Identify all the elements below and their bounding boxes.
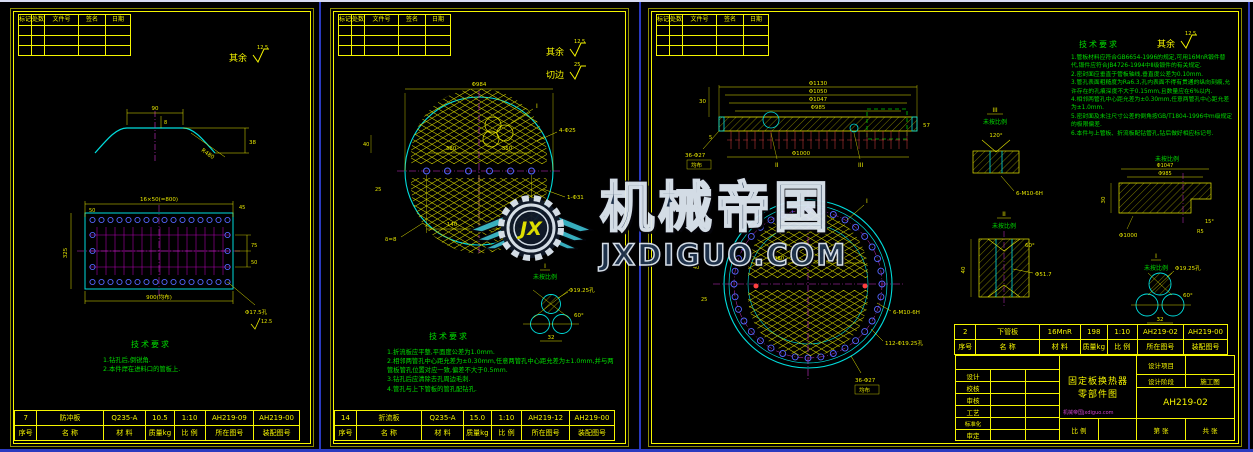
cad-canvas: 标记 处数 文件号 签名 日期 其余 12.5 90 [0,0,1253,452]
parts-strip: 14 折流板 Q235-A 15.0 1:10 AH219-12 AH219-0… [335,410,622,441]
part-mass: 15.0 [463,410,492,426]
dim-label: R5 [1197,229,1204,235]
frame-top [0,0,1253,2]
hole-callout: Φ19.25孔 [569,286,595,294]
dim-label: 325 [63,247,69,258]
bolt-hole-callout: 36-Φ27 [855,378,876,384]
col-header: 装配图号 [1183,339,1228,355]
col-header: 序号 [14,425,37,441]
dim-label: Φ984 [472,82,487,88]
part-drawing-no: AH219-09 [205,410,255,426]
dim-label: δ=8 [385,237,397,243]
watermark-site: JXDIGUO.COM [600,238,847,272]
scale-value-cell [1098,418,1137,441]
col-header: 序号 [334,425,357,441]
drawing-number-cell: AH219-02 [1136,387,1235,419]
stage-value-cell: 施工图 [1185,374,1235,388]
col-header: 装配图号 [569,425,615,441]
col-header: 质量kg [463,425,492,441]
tube-tick-marks [727,131,911,149]
part-scale: 1:10 [174,410,206,426]
sign-cell [990,429,1026,441]
col-header: 所在图号 [205,425,255,441]
part-material: Q235-A [103,410,147,426]
part-assembly-no: AH219-00 [1183,324,1228,340]
logo-monogram: JX [516,218,543,240]
marked-hole [863,284,868,289]
tech-req-title: 技术要求 [1079,39,1233,50]
sign-row-label: 审定 [955,429,991,441]
part-name: 防冲板 [36,410,103,426]
dim-label: 4-Φ25 [559,128,576,134]
sheet-number-cell: 第 张 [1136,418,1186,441]
col-header: 名 称 [356,425,422,441]
thread-callout: 6-M10-6H [893,310,920,316]
tech-req-item: 2.相邻两管孔中心距允差为±0.30mm,任意两管孔中心距允差为±1.0mm,并… [387,357,619,375]
dim-label: 90 [152,106,159,112]
detail-label: II [1002,211,1006,218]
col-header: 质量kg [145,425,174,441]
project-value-cell [1185,355,1235,375]
hole-callout: 36-Φ27 [685,153,706,159]
perforated-plate: 16×50(=800) 50 45 325 900(均布) 75 50 Φ17.… [63,197,272,329]
section-mark: III [858,162,864,169]
dim-label: 60° [574,313,584,319]
parts-headers: 序号 名 称 材 料 质量kg 比 例 所在图号 装配图号 [335,425,622,441]
dim-label: 25 [701,297,707,303]
dim-label: Φ1000 [792,151,811,157]
col-header: 名 称 [975,339,1039,355]
detail-I: I 未按比例 32 60° Φ19.25孔 [1131,253,1201,323]
tech-req-item: 6.本件与上管板、折流板配钻管孔,钻后做好相应标记号. [1071,130,1233,138]
dim-label: Φ1047 [1157,163,1174,169]
part-scale: 1:10 [1107,324,1138,340]
col-header: 比 例 [174,425,206,441]
col-header: 所在图号 [1137,339,1185,355]
tech-req-item: 1.管板材料应符合GB6654-1996的规定,可用16MnR锻件替代,锻件应符… [1071,54,1233,71]
parts-values: 7 防冲板 Q235-A 10.5 1:10 AH219-09 AH219-00 [15,410,307,426]
dim-label: 32 [1157,317,1164,323]
sheet-1-drawing: 90 8 38 R480 [13,11,311,444]
detail-callout: I [536,103,538,110]
sheet-total-cell: 共 张 [1185,418,1235,441]
tech-req-title: 技术要求 [429,331,619,342]
tech-req-item: 2.本件焊在进料口的管板上. [103,365,278,374]
dim-label: 40 [363,142,369,148]
dim-label: 8 [164,120,167,126]
dim-label: Φ1130 [809,81,828,87]
hole-callout: Φ19.25孔 [1175,264,1201,272]
dim-label: 25 [375,187,381,193]
col-header: 材 料 [103,425,147,441]
impingement-plate-arch: 90 8 38 R480 [95,106,256,163]
tech-requirements: 技术要求 1.钻孔后,倒锐角. 2.本件焊在进料口的管板上. [103,339,278,374]
gear-icon: JX [501,198,561,258]
frame-div-1 [319,2,321,449]
dim-label: 60° [1025,243,1035,249]
part-seq: 14 [334,410,357,426]
dim-label: Φ1050 [809,89,828,95]
dim-label: 40 [961,266,967,273]
tubesheet-section-view: Φ1130 Φ1050 Φ1047 Φ985 [685,81,930,169]
parts-values: 2 下管板 16MnR 198 1:10 AH219-02 AH219-00 [955,324,1235,340]
sheet-1: 标记 处数 文件号 签名 日期 其余 12.5 90 [10,8,314,447]
drawing-title-line2: 零部件图 [1078,387,1118,400]
part-assembly-no: AH219-00 [253,410,300,426]
not-to-scale-label: 未按比例 [983,118,1007,126]
dim-label: 15° [1205,219,1214,225]
detail-II: II 未按比例 60° Φ51.7 40 [961,211,1052,307]
parts-strip: 2 下管板 16MnR 198 1:10 AH219-02 AH219-00 序… [955,324,1235,355]
dim-label: 120° [989,133,1002,139]
detail-label: III [992,107,998,114]
section-mark: II [775,162,779,169]
thread-callout: 6-M10-6H [1016,191,1043,197]
parts-values: 14 折流板 Q235-A 15.0 1:10 AH219-12 AH219-0… [335,410,622,426]
not-to-scale-label: 未按比例 [1155,155,1179,163]
dim-label: 38 [249,140,256,146]
part-mass: 10.5 [145,410,174,426]
tech-req-item: 3.管孔表面粗糙度为Ra6.3,孔内表面不得有贯通的纵向刻痕,允许存在的孔痕深度… [1071,79,1233,96]
dim-label: 75 [251,243,257,249]
parts-headers: 序号 名 称 材 料 质量kg 比 例 所在图号 装配图号 [955,339,1235,355]
tech-req-item: 4.相邻两管孔中心距允差为±0.30mm,任意两管孔中心距允差为±1.0mm. [1071,96,1233,113]
tech-req-item: 1.折流板应平整,平面度公差为1.0mm. [387,348,619,357]
col-header: 比 例 [1107,339,1138,355]
dim-label: Φ985 [1158,171,1171,177]
part-name: 下管板 [975,324,1039,340]
dim-label: Φ985 [811,105,826,111]
not-to-scale-label: 未按比例 [1144,264,1168,272]
tech-req-item: 1.钻孔后,倒锐角. [103,356,278,365]
parts-headers: 序号 名 称 材 料 质量kg 比 例 所在图号 装配图号 [15,425,307,441]
watermark-brand: 机械帝国 [600,181,847,235]
part-scale: 1:10 [491,410,523,426]
not-to-scale-label: 未按比例 [533,273,557,281]
dim-label: R480 [200,148,216,161]
dim-label: 140 [447,222,458,228]
detail-label: I [1155,253,1157,260]
part-seq: 7 [14,410,37,426]
col-header: 装配图号 [253,425,300,441]
part-material: 16MnR [1039,324,1081,340]
sign-cell [1025,429,1060,441]
drawing-title-line1: 固定板换热器 [1068,374,1128,387]
col-header: 比 例 [491,425,523,441]
drawing-title-cell: 固定板换热器 零部件图 机械帝国jxdiguo.com [1059,355,1137,419]
dim-label: 16×50(=800) [140,197,178,203]
detail-III: III 未按比例 120° 6-M10-6H [973,107,1043,197]
part-material: Q235-A [421,410,464,426]
dim-label: Φ1047 [809,97,828,103]
watermark-text: 机械帝国 JXDIGUO.COM [600,181,847,272]
col-header: 质量kg [1080,339,1108,355]
dim-label: 30 [699,99,706,105]
not-to-scale-label: 未按比例 [992,222,1016,230]
part-drawing-no: AH219-02 [1137,324,1185,340]
dim-label: 57 [923,123,930,129]
part-assembly-no: AH219-00 [569,410,615,426]
stage-label-cell: 设计阶段 [1136,374,1186,388]
finish-value: 12.5 [261,319,272,325]
dim-label: 380 [446,146,457,152]
col-header: 所在图号 [521,425,570,441]
part-drawing-no: AH219-12 [521,410,570,426]
dim-label: 900(均布) [146,293,172,301]
tech-req-item: 4.管孔与上下管板的管孔配钻孔. [387,385,619,394]
parts-strip: 7 防冲板 Q235-A 10.5 1:10 AH219-09 AH219-00… [15,410,307,441]
tech-req-title: 技术要求 [131,339,278,350]
titleblock-watermark: 机械帝国jxdiguo.com [1063,409,1114,416]
dim-label: 50 [251,260,257,266]
project-label-cell: 设计项目 [1136,355,1186,375]
col-header: 序号 [954,339,976,355]
col-header: 材 料 [1039,339,1081,355]
groove-detail: 未按比例 Φ1047 Φ985 30 Φ1000 15° R5 [1101,155,1214,239]
tech-req-item: 3.钻孔后应清除去孔周边毛刺. [387,375,619,384]
hole-callout-note: 均布 [691,161,703,169]
tech-req-item: 5.密封面及未注尺寸公差的倒角按GB/T1804-1996中m级规定的极限偏差. [1071,113,1233,130]
watermark-logo-icon: JX [468,180,594,272]
dim-label: 45 [239,205,245,211]
tech-req-item: 2.密封面应垂直于管板轴线,垂直度公差为0.10mm. [1071,71,1233,79]
dim-label: 350 [502,146,513,152]
tube-pitch-detail: I 未按比例 32 60° Φ19.25孔 [523,263,595,341]
scale-label-cell: 比 例 [1059,418,1099,441]
part-name: 折流板 [356,410,422,426]
dim-label: Φ51.7 [1035,272,1052,278]
part-mass: 198 [1080,324,1108,340]
dim-label: 50 [89,208,95,214]
tech-requirements: 技术要求 1.管板材料应符合GB6654-1996的规定,可用16MnR锻件替代… [1071,39,1233,138]
frame-right [1248,2,1250,449]
watermark: JX 机械帝国 JXDIGUO.COM [468,180,847,272]
detail-callout: I [866,198,868,205]
bolt-hole-note: 均布 [859,386,871,394]
dim-label: Φ1000 [1119,233,1138,239]
col-header: 名 称 [36,425,103,441]
dim-label: 30 [1101,196,1107,203]
tech-requirements: 技术要求 1.折流板应平整,平面度公差为1.0mm. 2.相邻两管孔中心距允差为… [387,331,619,394]
blank-cell [955,355,1060,370]
marked-hole [754,284,759,289]
title-block: 2 下管板 16MnR 198 1:10 AH219-02 AH219-00 序… [955,324,1235,441]
dim-label: 60° [1183,293,1193,299]
part-seq: 2 [954,324,976,340]
hole-callout: Φ17.5孔 [245,308,268,316]
tube-hole-callout: 112-Φ19.25孔 [885,339,924,347]
col-header: 材 料 [421,425,464,441]
